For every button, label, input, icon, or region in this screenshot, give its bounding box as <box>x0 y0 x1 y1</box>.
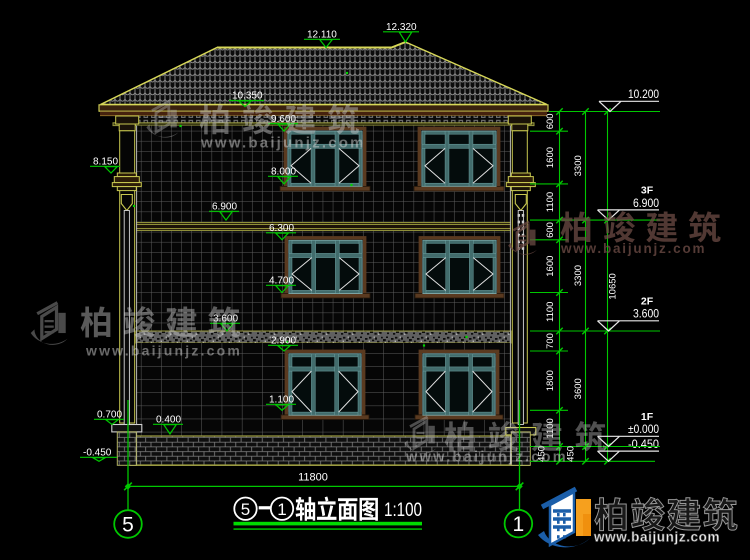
svg-text:1600: 1600 <box>545 147 556 168</box>
svg-text:1F: 1F <box>641 411 654 423</box>
svg-text:5: 5 <box>122 514 134 537</box>
svg-text:1800: 1800 <box>545 370 556 391</box>
svg-text:11800: 11800 <box>298 472 328 484</box>
svg-text:600: 600 <box>545 222 556 238</box>
svg-text:±0.000: ±0.000 <box>628 422 659 436</box>
svg-text:3300: 3300 <box>573 155 584 176</box>
svg-text:2F: 2F <box>641 296 654 308</box>
svg-text:600: 600 <box>545 113 556 129</box>
svg-text:1:100: 1:100 <box>384 500 422 521</box>
svg-text:1100: 1100 <box>545 302 556 322</box>
svg-text:www.baijunjz.com: www.baijunjz.com <box>593 530 720 545</box>
svg-text:1600: 1600 <box>545 256 556 277</box>
svg-text:6.900: 6.900 <box>633 196 659 210</box>
svg-text:www.baijunjz.com: www.baijunjz.com <box>85 343 242 359</box>
svg-text:1: 1 <box>513 513 525 536</box>
svg-text:www.baijunjz.com: www.baijunjz.com <box>200 135 366 152</box>
svg-text:700: 700 <box>545 333 556 349</box>
svg-text:3F: 3F <box>641 185 654 197</box>
svg-text:3600: 3600 <box>573 378 584 399</box>
svg-text:10650: 10650 <box>608 273 619 299</box>
svg-text:www.baijunjz.com: www.baijunjz.com <box>405 450 568 466</box>
svg-text:5: 5 <box>241 500 250 519</box>
svg-text:3.600: 3.600 <box>633 307 659 321</box>
svg-text:3300: 3300 <box>573 265 584 286</box>
svg-text:10.200: 10.200 <box>628 87 659 101</box>
svg-text:-0.450: -0.450 <box>628 437 659 451</box>
svg-text:www.baijunjz.com: www.baijunjz.com <box>560 241 706 256</box>
svg-text:1: 1 <box>277 500 286 519</box>
svg-text:1100: 1100 <box>545 192 556 212</box>
